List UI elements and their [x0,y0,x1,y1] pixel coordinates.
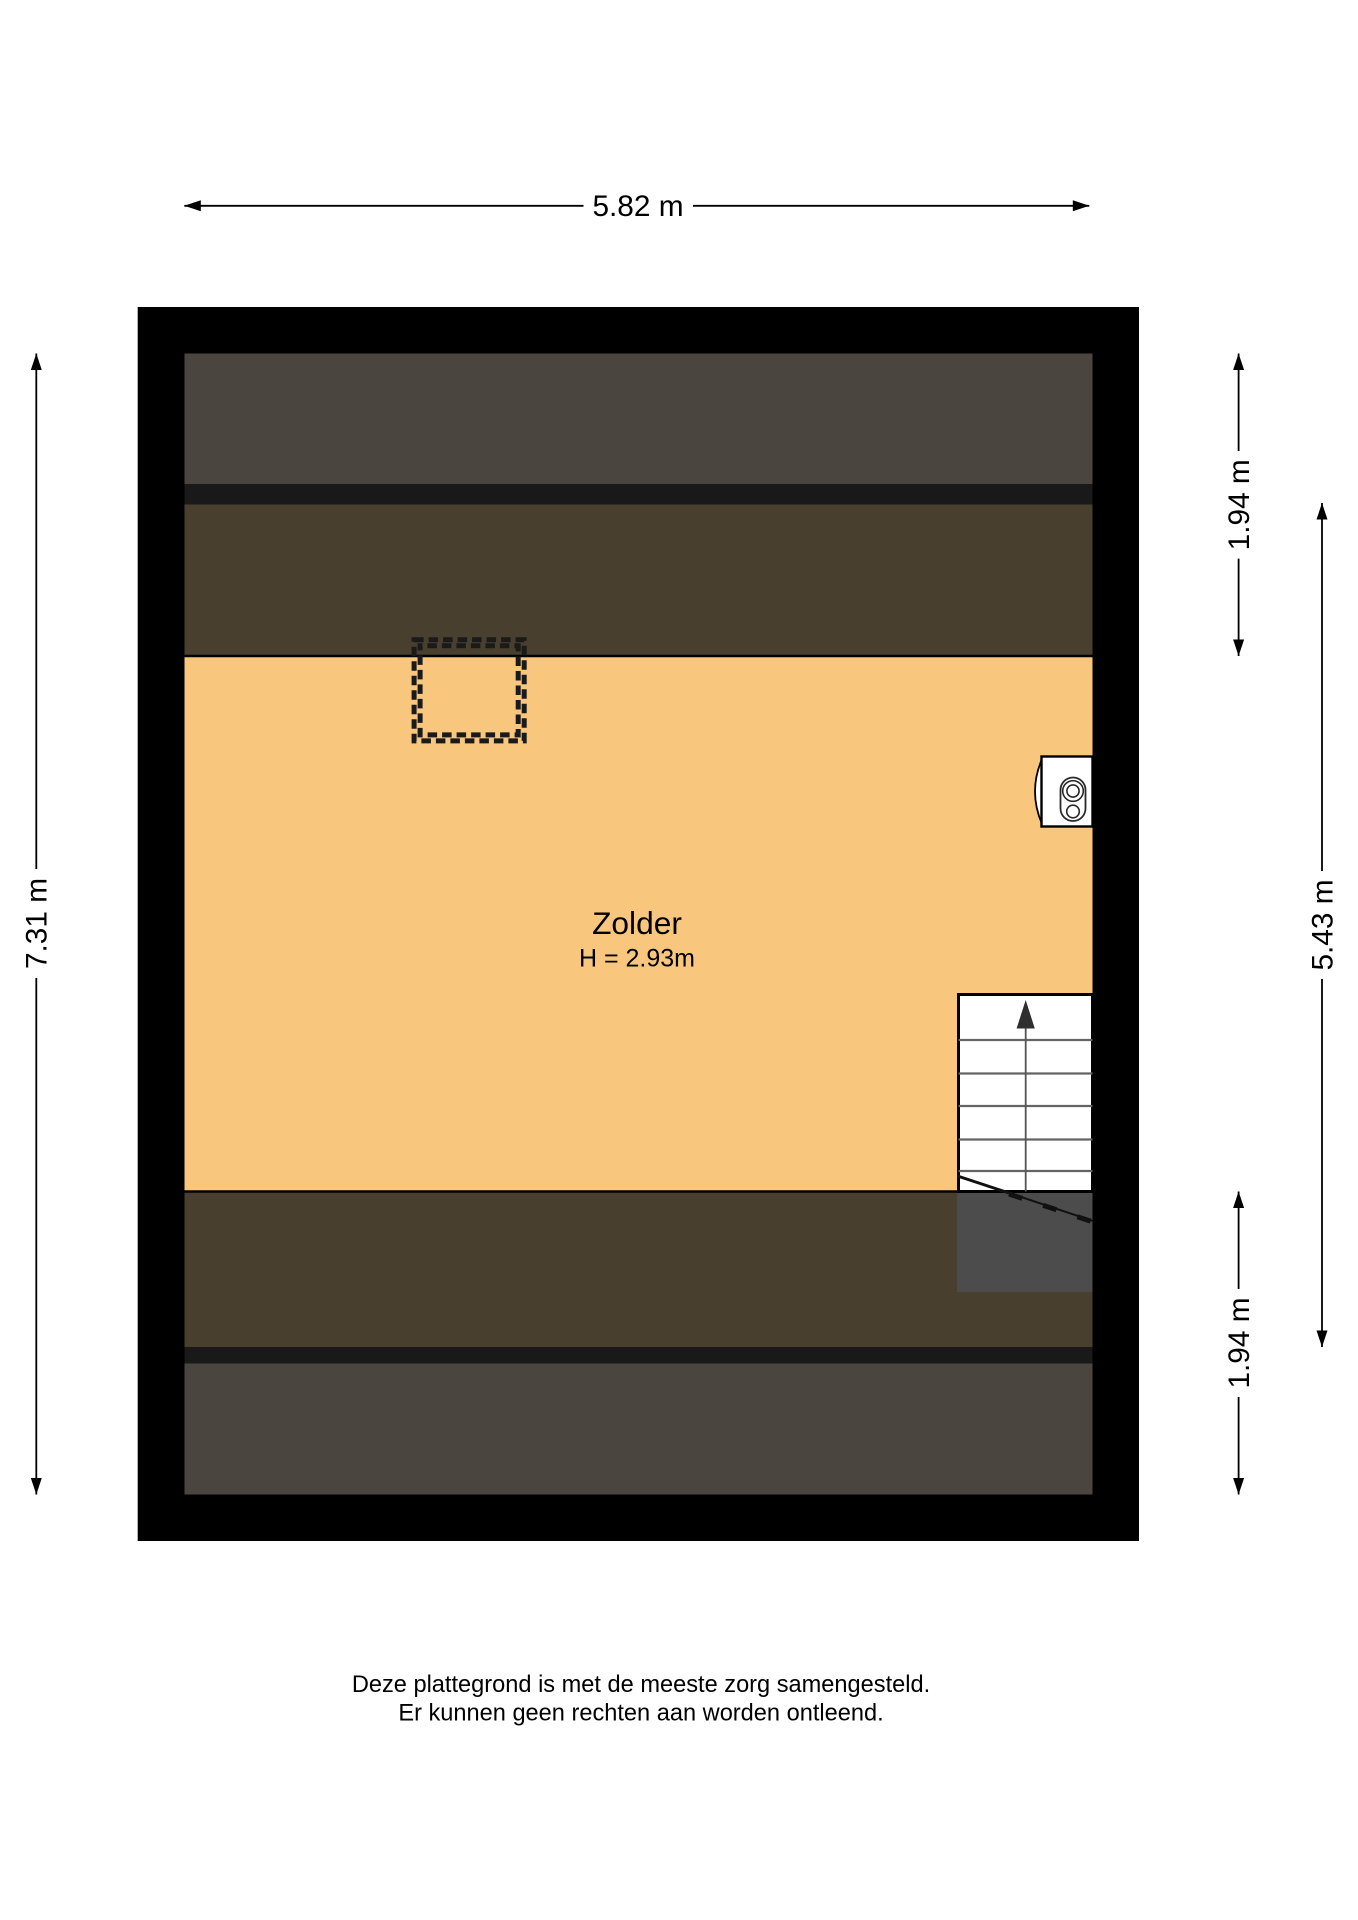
svg-text:Er kunnen geen rechten aan wor: Er kunnen geen rechten aan worden ontlee… [398,1701,883,1727]
svg-text:7.31 m: 7.31 m [21,878,54,969]
svg-text:Zolder: Zolder [592,905,682,941]
svg-text:H = 2.93m: H = 2.93m [579,945,695,973]
svg-text:5.82 m: 5.82 m [592,190,683,223]
svg-text:Deze plattegrond is met de mee: Deze plattegrond is met de meeste zorg s… [352,1672,930,1698]
svg-text:1.94 m: 1.94 m [1223,1297,1256,1388]
svg-text:1.94 m: 1.94 m [1223,459,1256,550]
svg-text:5.43 m: 5.43 m [1306,879,1339,970]
